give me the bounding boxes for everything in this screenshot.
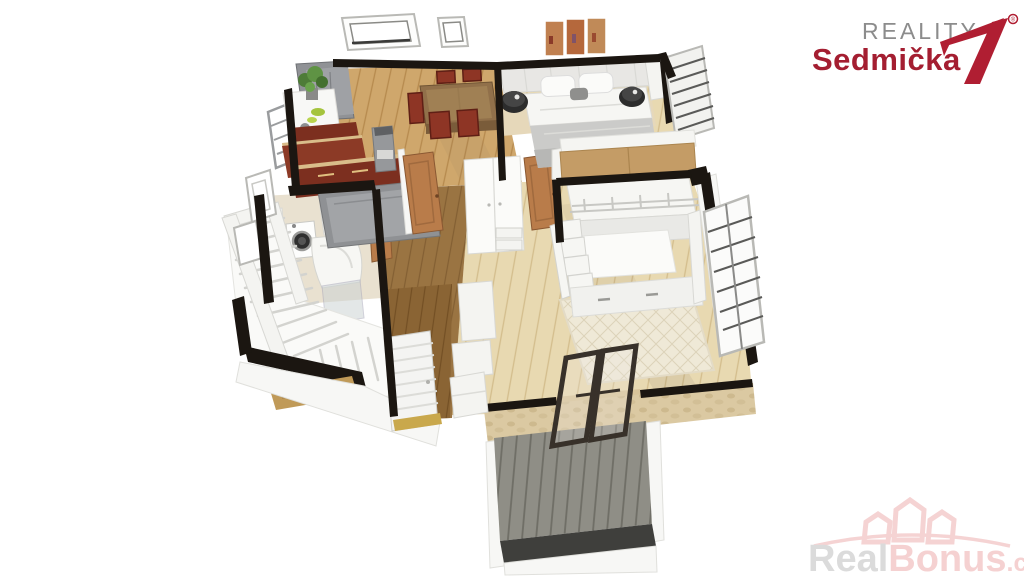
agency-logo: REALITY Sedmička ® [806, 12, 1020, 84]
watermark-bonus: Bonus [888, 538, 1006, 576]
balcony-glass-doors [552, 346, 636, 446]
wall-art-triptych [545, 18, 606, 56]
wardrobe [464, 156, 524, 254]
watermark-cz: .cz [1007, 549, 1024, 576]
watermark-text: RealBonus.cz [808, 538, 1024, 576]
realbonus-watermark: RealBonus.cz [806, 492, 1020, 576]
floorplan-3d [0, 0, 1024, 576]
registered-mark: ® [1011, 17, 1016, 24]
skylight-windows [342, 14, 468, 50]
nightstand-left [500, 91, 528, 113]
watermark-real: Real [808, 538, 888, 576]
white-cabinet-1 [458, 281, 496, 341]
floorplan-render-canvas: REALITY Sedmička ® RealBonus.cz [0, 0, 1024, 576]
logo-seven-icon: ® [934, 12, 1020, 86]
bedroom [498, 18, 714, 181]
coffee-machine [372, 126, 396, 172]
white-cabinet-2 [452, 340, 493, 378]
